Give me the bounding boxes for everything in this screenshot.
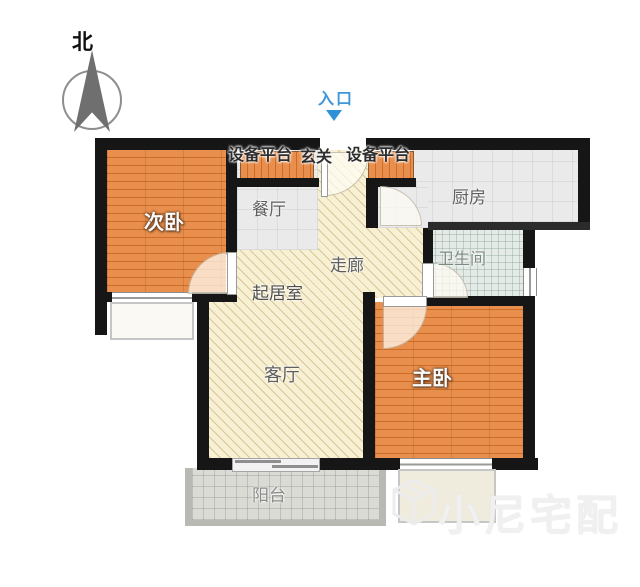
wall-living-bottom-right <box>316 458 400 470</box>
floor-plan-canvas: 北 入口 <box>0 0 640 587</box>
bedroom2-bay-window <box>110 302 194 340</box>
room-kitchen-label: 厨房 <box>452 183 486 208</box>
compass: 北 <box>58 26 132 136</box>
wall-bedroom2-dining-divider <box>226 150 237 255</box>
wall-living-master-divider <box>363 292 375 470</box>
foyer-label: 玄关 <box>300 143 332 167</box>
wall-kitchen-right <box>578 138 590 228</box>
bathroom-window <box>523 268 537 296</box>
room-sitting-label: 起居室 <box>252 279 303 304</box>
wall-bath-master-right <box>523 222 535 470</box>
balcony-sliding-door-panel-1 <box>235 460 281 463</box>
platform-left-label: 设备平台 <box>228 141 292 165</box>
balcony-wall-bottom <box>185 520 386 526</box>
wall-under-platform-left <box>237 178 319 187</box>
room-bathroom-label: 卫生间 <box>438 245 486 269</box>
room-corridor-label: 走廊 <box>330 251 364 276</box>
watermark-text: 小尼宅配 <box>438 482 622 543</box>
wall-bathroom-left-stub <box>423 228 433 264</box>
wall-foyer-kitchen-divider <box>366 180 378 228</box>
wall-left <box>95 138 107 335</box>
entrance-label: 入口 <box>318 85 354 109</box>
room-kitchen-floor <box>412 150 578 222</box>
wall-living-bottom-left <box>197 458 232 470</box>
platform-right-label: 设备平台 <box>346 141 410 165</box>
room-bedroom2-label: 次卧 <box>144 206 184 235</box>
balcony-wall-right <box>379 468 386 526</box>
room-balcony-label: 阳台 <box>252 481 286 506</box>
bedroom2-door-leaf <box>227 252 237 295</box>
room-living-label: 客厅 <box>264 361 300 387</box>
wall-kitchen-bottom <box>428 222 590 230</box>
compass-north-label: 北 <box>72 26 93 56</box>
entrance-arrow-icon <box>326 110 342 121</box>
balcony-sliding-door-panel-2 <box>272 465 318 468</box>
master-door-leaf <box>383 296 427 307</box>
room-master-label: 主卧 <box>412 362 452 391</box>
room-dining-label: 餐厅 <box>252 195 286 220</box>
bathroom-door-leaf <box>422 263 434 298</box>
balcony-wall-left <box>185 468 192 526</box>
wall-living-left <box>197 292 209 470</box>
watermark-box-icon <box>390 476 438 528</box>
